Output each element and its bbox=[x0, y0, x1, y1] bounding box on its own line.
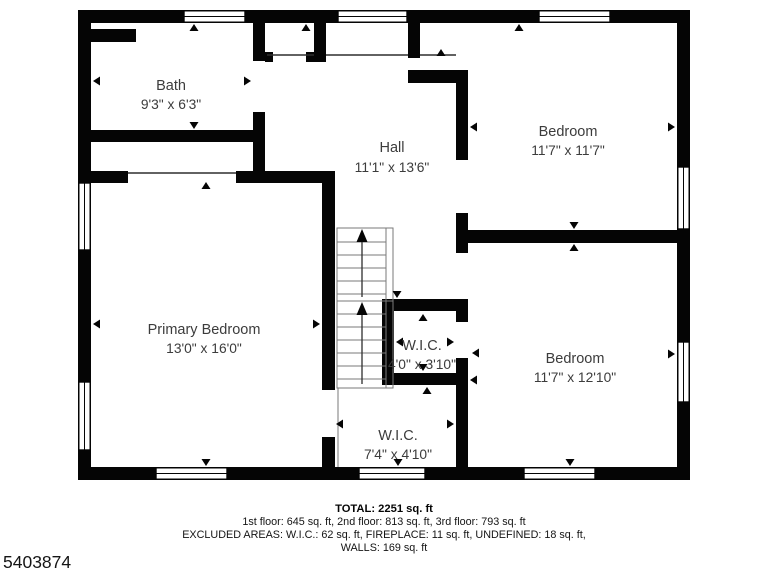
summary-excluded: EXCLUDED AREAS: W.I.C.: 62 sq. ft, FIREP… bbox=[182, 529, 586, 541]
room-label-primary-bedroom: Primary Bedroom bbox=[148, 322, 261, 338]
floor-plan-svg: Bath 9'3" x 6'3" Hall 11'1" x 13'6" Bedr… bbox=[0, 0, 768, 576]
room-dims-bedroom-bottom: 11'7" x 12'10" bbox=[534, 370, 616, 385]
room-label-bedroom-top: Bedroom bbox=[539, 124, 598, 140]
room-dims-bedroom-top: 11'7" x 11'7" bbox=[531, 143, 605, 158]
summary-total: TOTAL: 2251 sq. ft bbox=[335, 503, 433, 515]
room-dims-bath: 9'3" x 6'3" bbox=[141, 97, 201, 112]
room-label-bedroom-bottom: Bedroom bbox=[546, 351, 605, 367]
room-dims-hall: 11'1" x 13'6" bbox=[355, 160, 430, 175]
stairs-up-arrow bbox=[357, 302, 368, 384]
opening-lines bbox=[128, 55, 456, 467]
stairs-up-arrow bbox=[357, 229, 368, 297]
summary-floors: 1st floor: 645 sq. ft, 2nd floor: 813 sq… bbox=[242, 516, 525, 528]
listing-id: 5403874 bbox=[3, 552, 71, 572]
room-label-bath: Bath bbox=[156, 78, 186, 94]
area-summary: TOTAL: 2251 sq. ft 1st floor: 645 sq. ft… bbox=[182, 503, 586, 554]
room-label-wic-lower: W.I.C. bbox=[378, 428, 417, 444]
room-dims-wic-upper: 4'0" x 3'10" bbox=[388, 357, 456, 372]
room-dims-wic-lower: 7'4" x 4'10" bbox=[364, 447, 432, 462]
room-label-hall: Hall bbox=[380, 140, 405, 156]
room-dims-primary-bedroom: 13'0" x 16'0" bbox=[166, 341, 242, 356]
floor-plan-page: Bath 9'3" x 6'3" Hall 11'1" x 13'6" Bedr… bbox=[0, 0, 768, 576]
room-label-wic-upper: W.I.C. bbox=[402, 338, 441, 354]
summary-walls: WALLS: 169 sq. ft bbox=[341, 542, 428, 554]
